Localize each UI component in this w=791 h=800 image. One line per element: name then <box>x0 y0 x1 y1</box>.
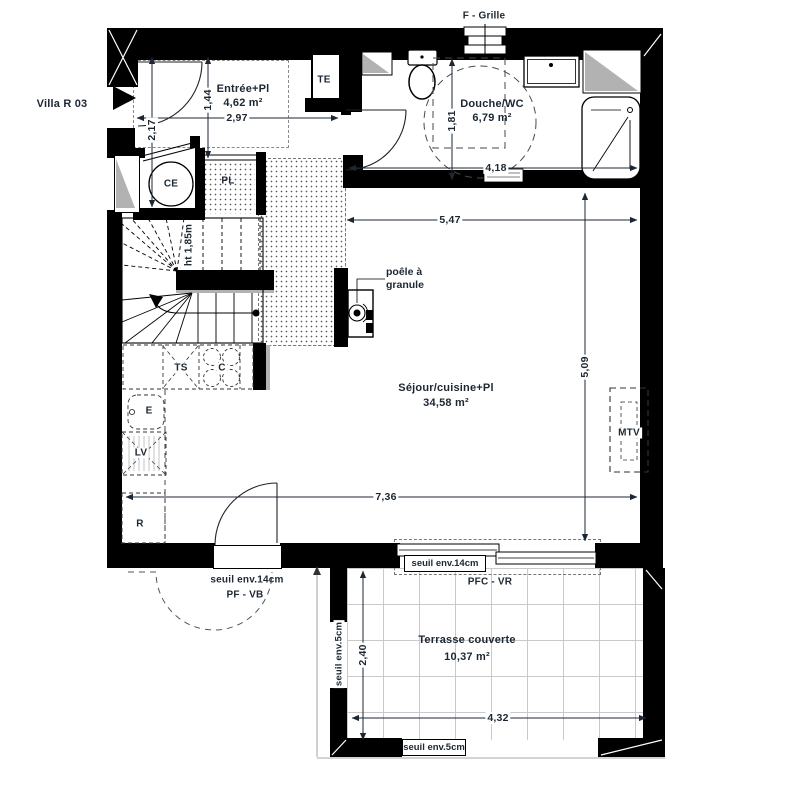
wall-terrace-right <box>643 568 665 757</box>
sejour-name: Séjour/cuisine+Pl <box>398 382 493 394</box>
douche-area: 6,79 m² <box>472 112 511 124</box>
wall-left-upper <box>107 128 135 158</box>
sejour-area: 34,58 m² <box>423 397 469 409</box>
dim-1-81: 1,81 <box>446 108 458 133</box>
wall-ce-right <box>195 148 205 220</box>
stove-label-1: poêle à <box>386 266 422 278</box>
stair-landing-bar <box>176 270 274 290</box>
wall-bottom-mid <box>280 543 400 568</box>
terrace-left-seuil-label: seuil env.5cm <box>334 620 345 688</box>
pl-door <box>203 155 260 160</box>
wall-stove-stub <box>334 268 348 347</box>
douche-name: Douche/WC <box>460 98 524 110</box>
wall-left-lower <box>107 210 122 543</box>
entree-name: Entrée+Pl <box>217 83 270 95</box>
dim-7-36: 7,36 <box>373 491 398 503</box>
pellet-stove-icon <box>348 279 385 337</box>
wall-terrace-bottom-right <box>598 738 665 757</box>
pf-vb-label: PF - VB <box>227 590 264 601</box>
ce-label: CE <box>164 179 178 190</box>
cooktop-label: C <box>216 363 227 374</box>
entree-area: 4,62 m² <box>223 97 262 109</box>
dim-4-32: 4,32 <box>485 712 510 724</box>
wall-bottom-left <box>107 543 215 568</box>
wall-right <box>640 28 663 568</box>
dim-2-97: 2,97 <box>224 112 249 124</box>
dim-1-44: 1,44 <box>202 87 214 112</box>
dim-2-17: 2,17 <box>146 117 158 142</box>
washbasin-icon <box>524 56 579 87</box>
pf-vb-window <box>213 545 282 569</box>
dim-2-40: 2,40 <box>357 642 369 667</box>
left-shaft-niche <box>114 155 140 213</box>
wall-top <box>107 28 663 60</box>
wall-terrace-left-b <box>330 688 347 740</box>
stair-height-label: ht 1,85m <box>184 222 195 268</box>
wall-te-stub <box>305 98 345 112</box>
floor-plan: Villa R 03 F - Grille Entrée+Pl 4,62 m² … <box>0 0 791 800</box>
terrace-door <box>215 483 277 545</box>
stove-label-2: granule <box>386 279 424 291</box>
dim-5-47: 5,47 <box>437 214 462 226</box>
terrasse-area: 10,37 m² <box>444 651 490 663</box>
stair-landing-shadow <box>176 290 274 293</box>
wall-terrace-left-a <box>330 568 347 622</box>
wall-douche-corner <box>343 155 363 188</box>
terrace-bottom-seuil-box: seuil env.5cm <box>402 739 466 756</box>
kitchen-fittings <box>122 345 253 543</box>
ts-label: TS <box>172 363 189 374</box>
pl-label: PL <box>221 176 234 187</box>
mtv-label: MTV <box>616 428 642 439</box>
kitchen-stub-shadow <box>266 345 270 390</box>
villa-label: Villa R 03 <box>37 98 88 110</box>
wall-pl-right <box>256 152 266 215</box>
grille-label: F - Grille <box>463 11 506 22</box>
placard-hatch-zone <box>258 158 346 346</box>
wall-corner-tl <box>107 28 138 87</box>
pf-vb-seuil-label: seuil env.14cm <box>210 575 283 586</box>
dim-4-18: 4,18 <box>483 162 508 174</box>
te-label: TE <box>317 75 330 86</box>
lv-label: LV <box>133 448 149 459</box>
terrasse-name: Terrasse couverte <box>418 634 515 646</box>
wall-kitchen-stub <box>253 343 266 390</box>
hinge-ce-b <box>190 136 200 148</box>
dim-5-09: 5,09 <box>579 354 591 379</box>
shower-icon <box>582 97 640 179</box>
pl-closet-hatch <box>203 162 255 214</box>
wall-terrace-bottom-left <box>330 738 402 757</box>
fridge-label: R <box>136 519 143 530</box>
pfc-vr-label: PFC - VR <box>468 577 512 588</box>
hinge-douche <box>341 105 351 115</box>
pfc-vr-seuil-box: seuil env.14cm <box>404 555 486 572</box>
stair-direction-arrow <box>149 294 260 317</box>
evier-label: E <box>144 406 155 417</box>
